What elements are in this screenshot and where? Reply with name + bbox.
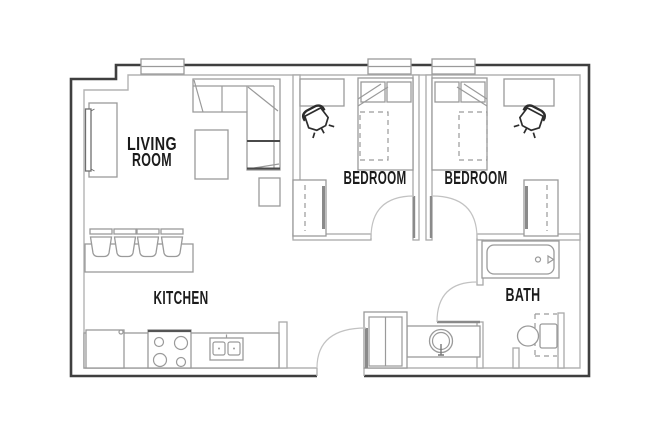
refrigerator-icon [86, 330, 124, 368]
bedroom-2 [432, 78, 558, 236]
living-room-window [141, 59, 184, 74]
kitchen [84, 330, 279, 368]
bar-stool-icon [137, 229, 159, 257]
range-cooktop-icon [148, 330, 191, 368]
floor-plan-page: LIVING ROOM BEDROOM BEDROOM KITCHEN BATH [0, 0, 660, 446]
closet-icon [293, 180, 326, 236]
bath-label: BATH [506, 285, 541, 305]
bedroom1-label: BEDROOM [344, 167, 407, 188]
bar-area [85, 229, 193, 272]
coffee-table-icon [195, 130, 228, 179]
living-room-label-line2: ROOM [132, 150, 172, 170]
door-swing [317, 328, 366, 368]
bedroom1-door [371, 196, 414, 238]
exterior-wall-inner [84, 75, 580, 368]
bedroom-1 [293, 78, 413, 236]
closet-icon [524, 180, 558, 236]
kitchen-label: KITCHEN [154, 288, 209, 308]
desk-icon [300, 79, 344, 106]
toilet-icon [518, 314, 558, 356]
bath-floor-stub-wall [513, 348, 519, 368]
windows [141, 59, 475, 74]
kitchen-sink-icon [210, 335, 243, 361]
bedroom1-window [368, 59, 411, 74]
side-table-icon [259, 178, 280, 206]
office-chair-icon [513, 103, 547, 139]
entry-opening-jambs [317, 368, 364, 376]
kitchen-end-wall-stub [279, 322, 287, 368]
door-swing [371, 196, 414, 238]
desk-icon [504, 79, 554, 106]
bathtub-icon [482, 241, 559, 278]
office-chair-icon [300, 103, 334, 139]
bar-stool-icon [90, 229, 112, 257]
floor-plan-drawing: LIVING ROOM BEDROOM BEDROOM KITCHEN BATH [0, 0, 660, 446]
vanity-nook [407, 326, 480, 357]
door-swing [432, 196, 477, 238]
bar-stool-icon [114, 229, 136, 257]
bedroom2-door [431, 196, 477, 238]
entry-door [317, 328, 367, 368]
bedroom2-window [432, 59, 475, 74]
bedroom2-label: BEDROOM [445, 167, 508, 188]
living-room [86, 79, 281, 206]
entry [364, 312, 407, 368]
tv-console [89, 103, 117, 177]
bath-door [437, 282, 480, 322]
toilet-plumbing-wall [558, 313, 564, 368]
door-swing [437, 282, 477, 322]
bar-stool-icon [161, 229, 183, 257]
utility-closet-icon [364, 312, 407, 368]
bed-icon [358, 78, 413, 170]
bed-icon [432, 78, 487, 170]
